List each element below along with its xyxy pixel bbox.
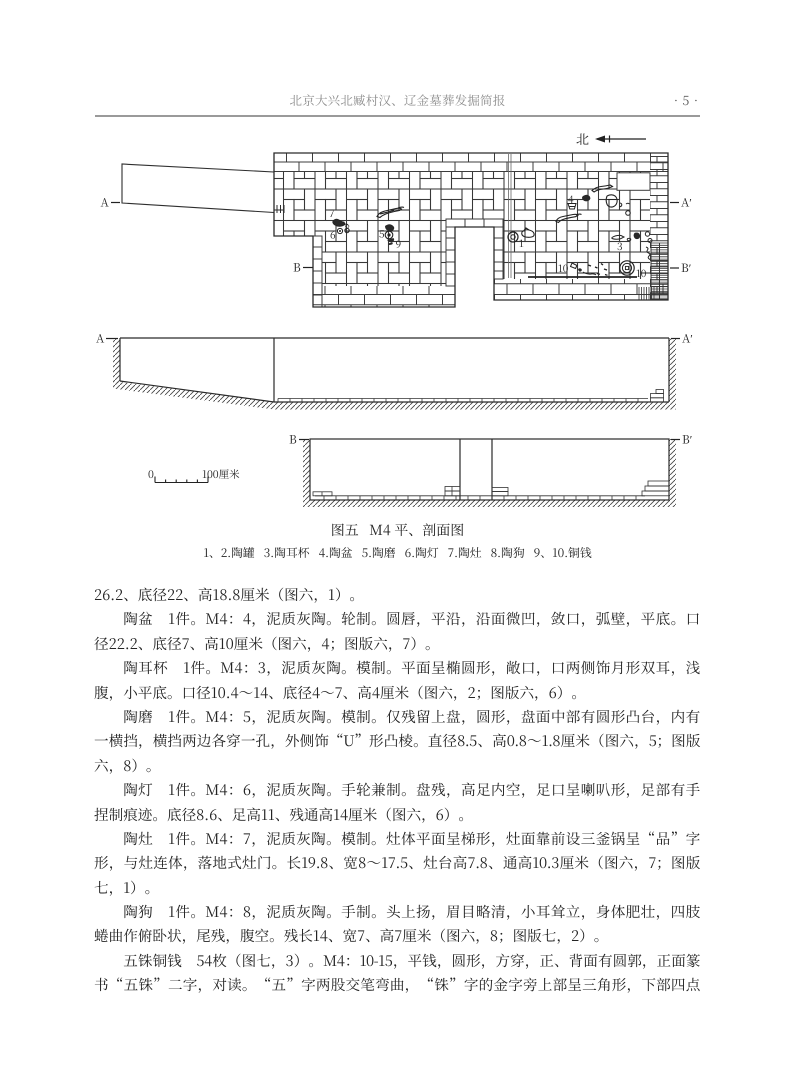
svg-text:B′: B′ (682, 432, 692, 448)
svg-text:10: 10 (558, 260, 569, 275)
svg-text:8: 8 (345, 220, 351, 235)
svg-text:0: 0 (148, 467, 154, 482)
svg-text:3: 3 (617, 238, 623, 253)
svg-text:6: 6 (330, 227, 336, 242)
svg-text:B: B (293, 260, 301, 276)
svg-text:B: B (289, 432, 297, 448)
svg-text:5: 5 (379, 226, 385, 241)
svg-text:B′: B′ (681, 260, 691, 276)
svg-text:A: A (101, 195, 110, 211)
svg-text:北: 北 (576, 129, 589, 148)
svg-text:A: A (96, 331, 105, 347)
svg-text:10: 10 (636, 265, 647, 280)
svg-text:1: 1 (519, 235, 524, 250)
svg-text:A′: A′ (682, 331, 693, 347)
svg-text:A′: A′ (681, 195, 692, 211)
svg-text:9: 9 (396, 236, 402, 251)
svg-text:7: 7 (329, 205, 335, 220)
